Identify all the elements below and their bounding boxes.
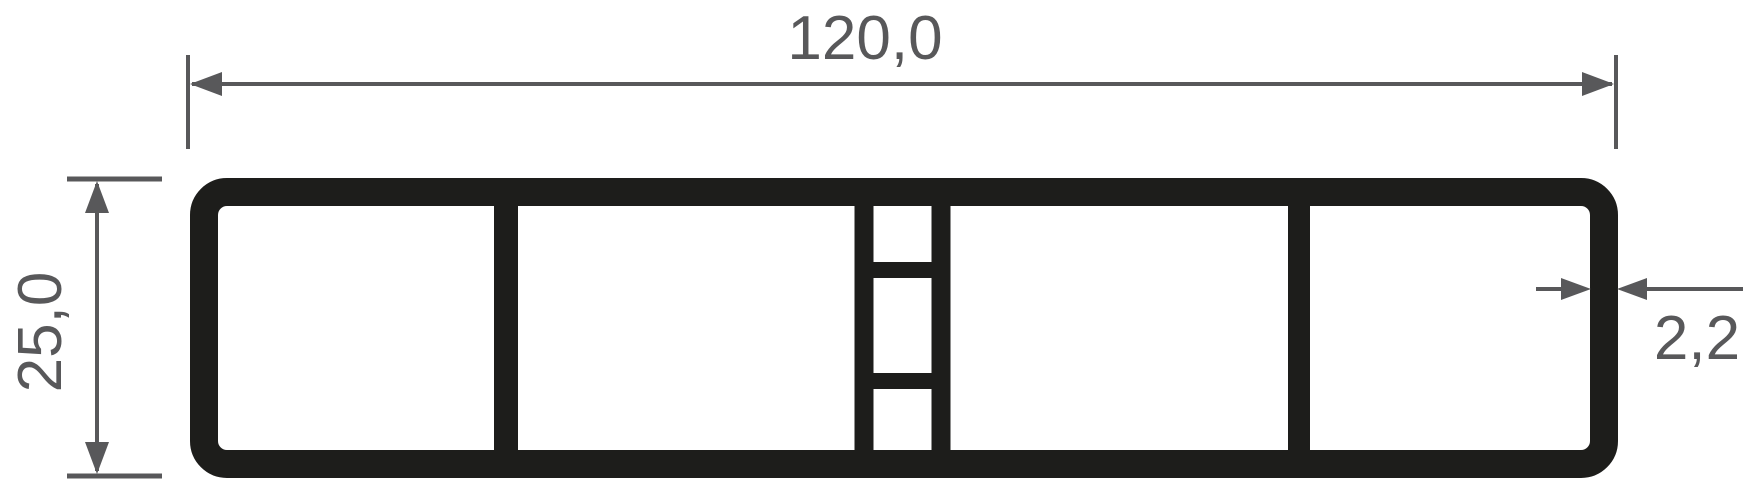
width-dimension-label: 120,0 <box>787 8 942 70</box>
profile-outline-group <box>204 191 1604 465</box>
height-dimension-label: 25,0 <box>10 272 72 393</box>
width-arrowhead-right-icon <box>1582 72 1614 96</box>
height-arrowhead-bottom-icon <box>85 442 109 474</box>
wall-arrowhead-left-icon <box>1561 278 1591 300</box>
wall-arrowhead-right-icon <box>1617 278 1647 300</box>
height-arrowhead-top-icon <box>85 181 109 213</box>
profile-outer-shell <box>204 192 1604 464</box>
width-arrowhead-left-icon <box>190 72 222 96</box>
drawing-canvas: 120,0 25,0 2,2 <box>0 0 1743 480</box>
wall-thickness-dimension-label: 2,2 <box>1654 308 1740 370</box>
